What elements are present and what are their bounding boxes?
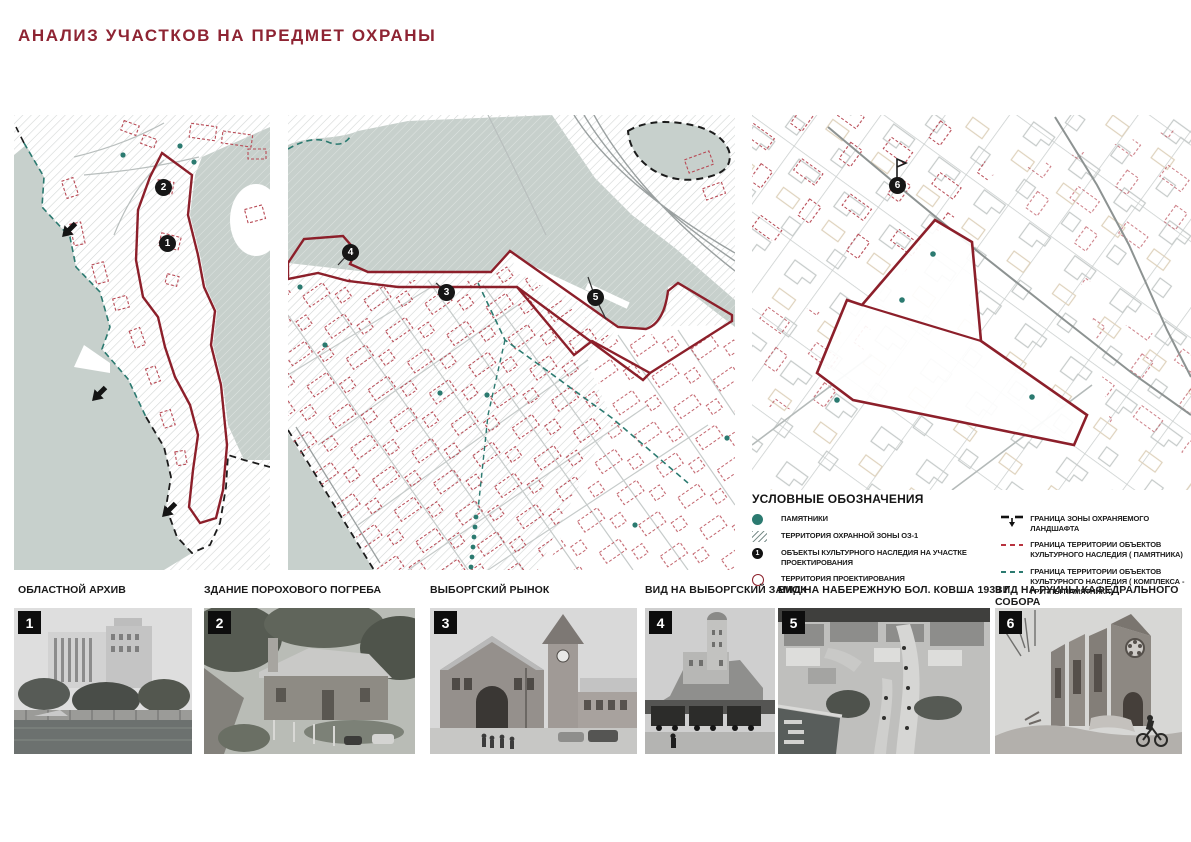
- map-street-grid: 6: [752, 115, 1191, 490]
- map-marker-6-number: 6: [895, 181, 901, 191]
- photo-number: 3: [442, 615, 450, 631]
- photo-cathedral-ruins: 6: [995, 608, 1182, 754]
- photo-number: 1: [26, 615, 34, 631]
- map-grid-drawing: [752, 115, 1191, 490]
- map-bay-waterfront: 3 4 5: [288, 115, 735, 570]
- photo-caption-6: ВИД НА РУИНЫ КАФЕДРАЛЬНОГО СОБОРА: [995, 584, 1191, 608]
- page-title: АНАЛИЗ УЧАСТКОВ НА ПРЕДМЕТ ОХРАНЫ: [18, 26, 436, 46]
- legend-label: ТЕРРИТОРИЯ ОХРАННОЙ ЗОНЫ ОЗ-1: [781, 531, 918, 541]
- photo-embankment-aerial: 5: [778, 608, 990, 754]
- photo-number-badge: 6: [999, 611, 1022, 634]
- numbered-dot-digit: 1: [756, 550, 760, 557]
- photo-3-image: [430, 608, 637, 754]
- map-marker-2-number: 2: [161, 183, 167, 193]
- legend: УСЛОВНЫЕ ОБОЗНАЧЕНИЯ ПАМЯТНИКИ ТЕРРИТОРИ…: [752, 492, 1191, 597]
- photo-number: 2: [216, 615, 224, 631]
- photo-6-image: [995, 608, 1182, 754]
- photo-5-image: [778, 608, 990, 754]
- photo-caption-2: ЗДАНИЕ ПОРОХОВОГО ПОГРЕБА: [204, 584, 381, 596]
- map-marker-4-number: 4: [348, 248, 354, 258]
- legend-item-monuments: ПАМЯТНИКИ: [752, 514, 977, 525]
- legend-label: ГРАНИЦА ЗОНЫ ОХРАНЯЕМОГО ЛАНДШАФТА: [1030, 514, 1191, 534]
- legend-item-heritage-boundary-monument: ГРАНИЦА ТЕРРИТОРИИ ОБЪЕКТОВ КУЛЬТУРНОГО …: [1001, 540, 1191, 560]
- photo-number-badge: 5: [782, 611, 805, 634]
- monument-dot-icon: [752, 514, 763, 525]
- teal-dashed-line-icon: [1001, 571, 1023, 573]
- legend-item-heritage-objects: 1 ОБЪЕКТЫ КУЛЬТУРНОГО НАСЛЕДИЯ НА УЧАСТК…: [752, 548, 977, 568]
- legend-title: УСЛОВНЫЕ ОБОЗНАЧЕНИЯ: [752, 492, 1191, 506]
- map-marker-3-number: 3: [444, 288, 450, 298]
- photo-market-hall: 3: [430, 608, 637, 754]
- map-marker-4: 4: [342, 244, 359, 261]
- photo-number-badge: 2: [208, 611, 231, 634]
- photo-number-badge: 3: [434, 611, 457, 634]
- legend-label: ТЕРРИТОРИЯ ПРОЕКТИРОВАНИЯ: [781, 574, 905, 584]
- photo-powder-cellar: 2: [204, 608, 415, 754]
- photo-caption-5: ВИД НА НАБЕРЕЖНУЮ БОЛ. КОВША 1939 Г: [778, 584, 1010, 596]
- photo-number: 6: [1007, 615, 1015, 631]
- red-dashed-line-icon: [1001, 544, 1023, 546]
- map-marker-1-number: 1: [165, 239, 171, 249]
- map-peninsula: 1 2: [14, 115, 270, 570]
- photo-number-badge: 1: [18, 611, 41, 634]
- photo-number-badge: 4: [649, 611, 672, 634]
- landscape-boundary-icon: [1001, 514, 1023, 527]
- photo-caption-1: ОБЛАСТНОЙ АРХИВ: [18, 584, 126, 596]
- photo-caption-3: ВЫБОРГСКИЙ РЫНОК: [430, 584, 549, 596]
- photo-2-image: [204, 608, 415, 754]
- photo-regional-archive: 1: [14, 608, 192, 754]
- photo-number: 4: [657, 615, 665, 631]
- legend-item-landscape-boundary: ГРАНИЦА ЗОНЫ ОХРАНЯЕМОГО ЛАНДШАФТА: [1001, 514, 1191, 534]
- hatch-swatch-icon: [752, 531, 767, 542]
- map-peninsula-drawing: [14, 115, 270, 570]
- map-bay-drawing: [288, 115, 735, 570]
- photo-number: 5: [790, 615, 798, 631]
- analysis-board: АНАЛИЗ УЧАСТКОВ НА ПРЕДМЕТ ОХРАНЫ: [0, 0, 1191, 842]
- numbered-dot-icon: 1: [752, 548, 763, 559]
- map-marker-6: 6: [889, 177, 906, 194]
- map-marker-3: 3: [438, 284, 455, 301]
- map-marker-5-number: 5: [593, 293, 599, 303]
- legend-item-protection-zone: ТЕРРИТОРИЯ ОХРАННОЙ ЗОНЫ ОЗ-1: [752, 531, 977, 542]
- legend-label: ПАМЯТНИКИ: [781, 514, 828, 524]
- legend-label: ОБЪЕКТЫ КУЛЬТУРНОГО НАСЛЕДИЯ НА УЧАСТКЕ …: [781, 548, 977, 568]
- map-marker-5: 5: [587, 289, 604, 306]
- legend-label: ГРАНИЦА ТЕРРИТОРИИ ОБЪЕКТОВ КУЛЬТУРНОГО …: [1030, 540, 1191, 560]
- map-marker-2: 2: [155, 179, 172, 196]
- map-marker-1: 1: [159, 235, 176, 252]
- photo-castle: 4: [645, 608, 775, 754]
